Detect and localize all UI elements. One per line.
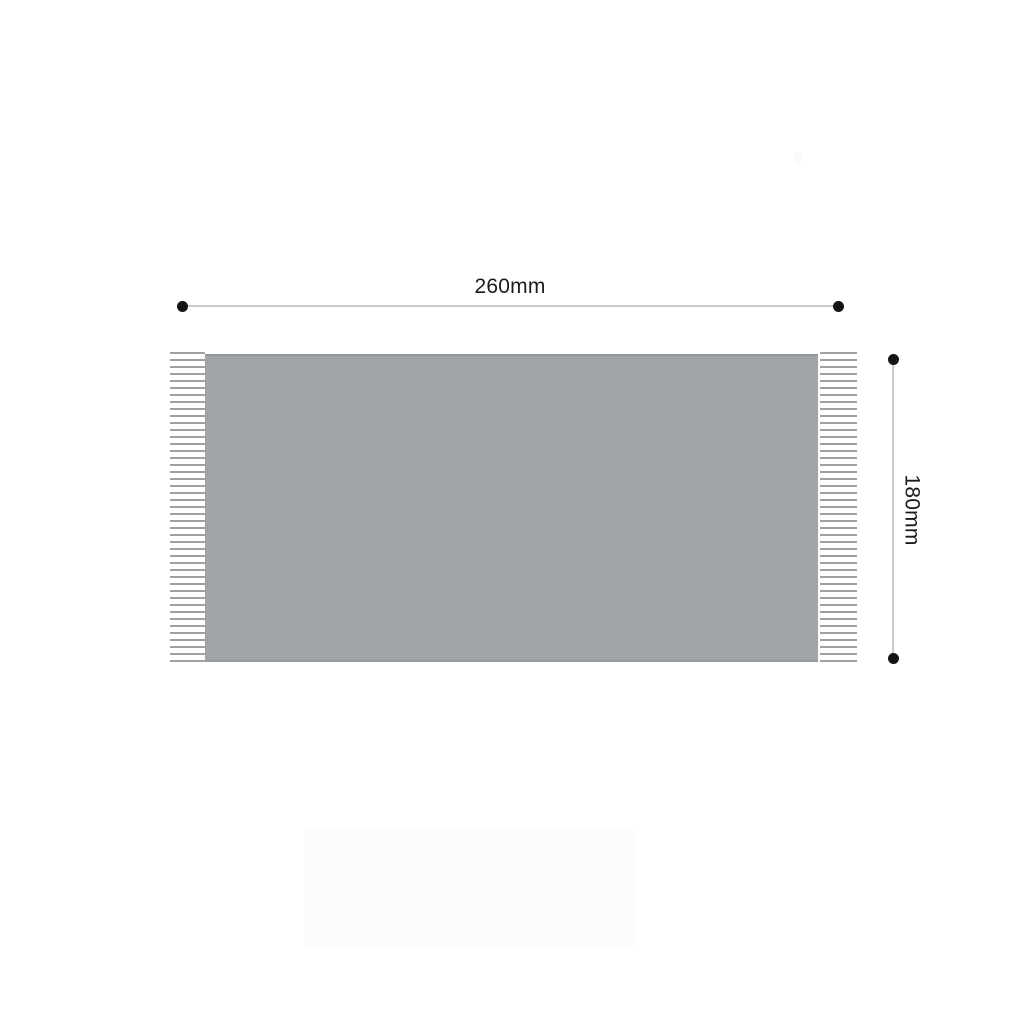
height-dimension-end-dot: [888, 653, 899, 664]
faint-shadow-artifact: [305, 828, 635, 947]
height-dimension-start-dot: [888, 354, 899, 365]
height-dimension-label: 180mm: [900, 474, 925, 545]
blanket-fringe-left: [170, 352, 205, 665]
width-dimension-end-dot: [833, 301, 844, 312]
width-dimension-start-dot: [177, 301, 188, 312]
height-dimension-line: [892, 359, 894, 658]
blanket-fringe-right: [820, 352, 857, 665]
product-dimension-diagram: 260mm 180mm: [0, 0, 1024, 1024]
blanket-body: [205, 354, 818, 662]
width-dimension-label: 260mm: [182, 274, 838, 300]
width-dimension-line: [182, 305, 838, 307]
faint-smudge-artifact: [795, 152, 801, 166]
